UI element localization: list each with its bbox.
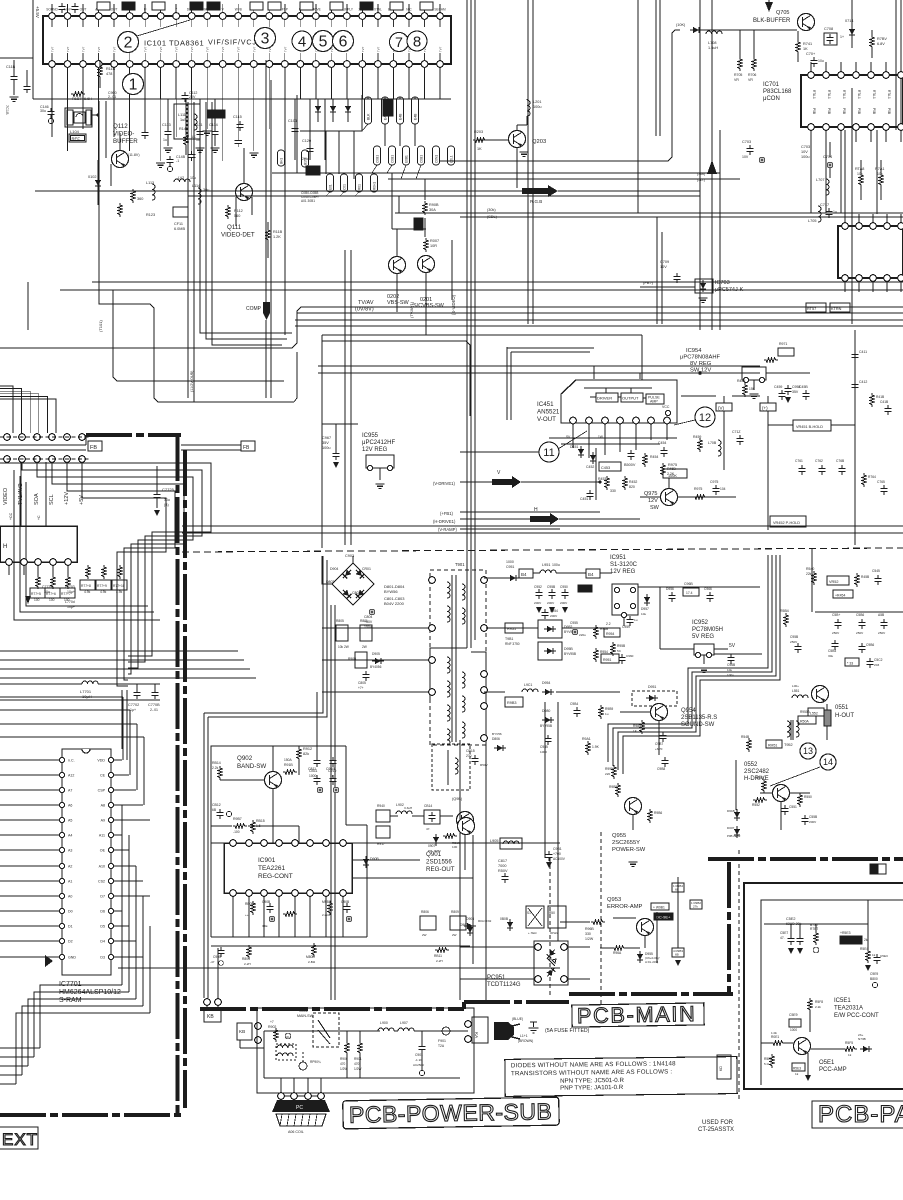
svg-text:100: 100	[452, 845, 457, 849]
svg-text:L902: L902	[396, 803, 404, 807]
svg-text:0B0B: 0B0B	[500, 917, 509, 921]
svg-text:C959: C959	[622, 625, 630, 629]
svg-text:L114: L114	[192, 184, 200, 188]
svg-text:1k: 1k	[795, 1072, 799, 1076]
svg-text:C9B8: C9B8	[657, 767, 665, 771]
svg-text:BYV95B: BYV95B	[540, 724, 552, 728]
svg-text:COMP: COMP	[246, 306, 262, 312]
svg-text:R995: R995	[605, 767, 613, 771]
svg-text:RP90¼: RP90¼	[310, 1060, 321, 1064]
svg-text:470: 470	[340, 1062, 346, 1066]
svg-text:C120: C120	[302, 139, 311, 143]
svg-text:100u: 100u	[552, 563, 560, 567]
svg-text:+R454: +R454	[835, 594, 845, 598]
svg-text:POWER-SW: POWER-SW	[612, 847, 646, 853]
svg-text:R954: R954	[606, 632, 614, 636]
svg-text:12V REG: 12V REG	[362, 447, 388, 453]
svg-text:P0B: P0B	[857, 108, 861, 114]
svg-text:TVT: TVT	[82, 46, 86, 52]
svg-text:(5D.): (5D.)	[697, 178, 705, 182]
svg-text:R902: R902	[268, 1025, 276, 1029]
svg-text:4.9k: 4.9k	[100, 590, 107, 594]
svg-text:++: ++	[245, 913, 249, 917]
svg-text:+12V: +12V	[64, 492, 70, 505]
svg-text:0102: 0102	[88, 175, 96, 179]
svg-text:2-2H: 2-2H	[244, 962, 251, 966]
svg-text:CT-25ASSTX: CT-25ASSTX	[698, 1127, 734, 1133]
svg-text:R454: R454	[650, 455, 658, 459]
svg-text:220: 220	[605, 772, 610, 776]
svg-text:1/2W: 1/2W	[585, 937, 594, 941]
svg-text:C9B4: C9B4	[570, 702, 578, 706]
svg-text:CSP: CSP	[98, 789, 106, 793]
svg-text:A7: A7	[68, 789, 72, 793]
svg-text:P83CL168: P83CL168	[763, 89, 792, 95]
svg-text:C01: C01	[343, 184, 347, 190]
svg-text:E4B: E4B	[384, 113, 388, 120]
svg-text:IC701: IC701	[763, 82, 780, 88]
svg-text:CR01: CR01	[362, 567, 371, 571]
svg-text:R764: R764	[868, 475, 876, 479]
svg-text:1K: 1K	[477, 147, 482, 151]
svg-text:C551: C551	[789, 805, 797, 809]
svg-text:IC901: IC901	[258, 857, 276, 864]
svg-text:+7+: +7+	[358, 686, 364, 690]
svg-text:VDD: VDD	[97, 759, 105, 763]
svg-text:B4: B4	[521, 572, 527, 577]
svg-text:+5.5V: +5.5V	[35, 6, 40, 18]
svg-text:C7729: C7729	[42, 585, 52, 589]
svg-text:5.Ω: 5.Ω	[764, 1062, 770, 1066]
svg-text:TVT: TVT	[159, 46, 163, 52]
svg-text:R9B6: R9B6	[654, 811, 662, 815]
svg-text:Q901: Q901	[426, 851, 442, 858]
svg-text:220u: 220u	[579, 633, 586, 637]
svg-text:TEA2031A: TEA2031A	[834, 1006, 863, 1012]
svg-text:A6: A6	[68, 804, 72, 808]
svg-text:2-BΩ: 2-BΩ	[308, 960, 316, 964]
svg-text:1u5: 1u5	[180, 118, 186, 122]
svg-text:RB11: RB11	[434, 954, 442, 958]
svg-text:R7BV: R7BV	[877, 37, 887, 41]
svg-text:F901: F901	[438, 1039, 446, 1043]
svg-text:VIF/SIF/VCJ: VIF/SIF/VCJ	[208, 38, 257, 47]
svg-text:B4: B4	[588, 572, 594, 577]
svg-text:KA: KA	[474, 1032, 479, 1039]
svg-text:A DL 203): A DL 203)	[645, 960, 658, 964]
svg-text:10u: 10u	[190, 176, 196, 180]
svg-text:E4B: E4B	[414, 113, 418, 120]
svg-text:IC951: IC951	[610, 555, 627, 561]
svg-text:Q705: Q705	[776, 10, 789, 16]
svg-text:C451: C451	[580, 497, 588, 501]
svg-text:C762: C762	[815, 459, 823, 463]
svg-text:C954: C954	[550, 609, 558, 613]
svg-text:2.2k: 2.2k	[815, 1005, 821, 1009]
svg-text:1.9K: 1.9K	[592, 745, 600, 749]
svg-text:1: 1	[129, 77, 138, 94]
svg-text:-1: -1	[176, 159, 179, 163]
svg-text:14: 14	[823, 757, 833, 767]
svg-text:RM51: RM51	[768, 744, 777, 748]
svg-text:1.5uH: 1.5uH	[708, 46, 718, 50]
svg-text:Q975: Q975	[644, 491, 657, 497]
svg-text:DRIVER: DRIVER	[597, 396, 612, 401]
svg-text:(SDL): (SDL)	[487, 215, 498, 219]
svg-text:C41B: C41B	[880, 400, 889, 404]
svg-text:CD: CD	[285, 1035, 289, 1039]
svg-text:R428: R428	[737, 379, 745, 383]
svg-text:CF11: CF11	[174, 222, 183, 226]
svg-text:IC703: IC703	[715, 280, 730, 286]
svg-text:R0H1: R0H1	[373, 182, 377, 190]
svg-text:VIDEO: VIDEO	[3, 487, 9, 505]
svg-text:BYV95B: BYV95B	[564, 652, 576, 656]
svg-text:IC955: IC955	[362, 433, 379, 439]
svg-text:D954: D954	[542, 681, 550, 685]
svg-text:(10K): (10K)	[676, 23, 686, 27]
svg-text:C95B: C95B	[547, 585, 556, 589]
svg-text:H: H	[3, 544, 7, 550]
svg-text:D451: D451	[570, 445, 578, 449]
svg-text:C96B: C96B	[684, 582, 693, 586]
svg-text:250V: 250V	[832, 631, 840, 635]
svg-text:200V: 200V	[560, 601, 568, 605]
svg-text:TEA2261: TEA2261	[258, 865, 285, 872]
svg-text:M9B7: M9B7	[322, 900, 331, 904]
svg-text:2-2H: 2-2H	[436, 959, 443, 963]
svg-text:L708: L708	[708, 41, 716, 45]
svg-text:IC7701: IC7701	[59, 981, 82, 988]
svg-text:P0B 2EB2: P0B 2EB2	[727, 834, 741, 838]
svg-text:R01: R01	[358, 184, 362, 190]
svg-text:VBS-SW: VBS-SW	[387, 300, 410, 306]
svg-text:R9B9: R9B9	[605, 707, 613, 711]
svg-text:VR: VR	[748, 78, 753, 82]
svg-text:(30k): (30k)	[487, 208, 496, 212]
svg-text:1μ+: 1μ+	[130, 708, 136, 712]
svg-text:1k: 1k	[848, 1053, 852, 1057]
svg-text:D007: D007	[727, 826, 735, 830]
svg-text:R806: R806	[421, 910, 429, 914]
svg-text:4.9k: 4.9k	[84, 590, 91, 594]
svg-text:C9E9: C9E9	[870, 972, 878, 976]
svg-text:2: 2	[124, 35, 133, 52]
svg-text:10u: 10u	[641, 612, 646, 616]
svg-text:P0B: P0B	[812, 108, 816, 114]
svg-text:L00+: L00+	[792, 684, 799, 688]
svg-text:T2A: T2A	[438, 1044, 445, 1048]
svg-text:(+FB1): (+FB1)	[440, 511, 454, 516]
svg-text:OE: OE	[100, 849, 106, 853]
svg-text:1u: 1u	[605, 712, 609, 716]
svg-text:RTA.1: RTA.1	[872, 90, 876, 99]
svg-text:B730: B730	[810, 923, 818, 927]
svg-text:C975: C975	[710, 480, 718, 484]
svg-text:100u: 100u	[322, 446, 330, 450]
svg-text:C0B1: C0B1	[391, 155, 395, 163]
svg-text:FB: FB	[90, 445, 97, 451]
svg-text:(11/2V OUB): (11/2V OUB)	[190, 370, 194, 392]
svg-text:TVT: TVT	[361, 46, 365, 52]
svg-text:L113: L113	[146, 181, 154, 185]
svg-text:+700: +700	[553, 852, 561, 856]
svg-text:T901: T901	[455, 562, 465, 567]
svg-text:L70B: L70B	[708, 441, 717, 445]
svg-text:478: 478	[106, 72, 112, 76]
svg-text:7: 7	[395, 35, 403, 51]
svg-text:C7725: C7725	[162, 487, 175, 492]
svg-text:100u: 100u	[533, 105, 541, 109]
svg-text:A9: A9	[101, 819, 105, 823]
svg-text:R41B: R41B	[876, 395, 885, 399]
svg-text:C770B: C770B	[148, 703, 160, 707]
svg-text:IC5E1: IC5E1	[834, 998, 851, 1004]
svg-text:RTA.1: RTA.1	[827, 90, 831, 99]
svg-text:C459: C459	[774, 385, 782, 389]
svg-text:1/2W: 1/2W	[354, 1067, 361, 1071]
svg-text:30A: 30A	[429, 208, 436, 212]
svg-text:470: 470	[354, 1062, 360, 1066]
svg-text:R452: R452	[629, 480, 637, 484]
svg-text:Q203: Q203	[532, 139, 546, 145]
svg-text:μPC2412HF: μPC2412HF	[362, 440, 395, 446]
svg-text:R551: R551	[756, 776, 764, 780]
svg-text:2SC2655Y: 2SC2655Y	[612, 840, 640, 846]
svg-text:(V-DRIVE1): (V-DRIVE1)	[433, 481, 455, 486]
svg-text:BYW56: BYW56	[384, 589, 398, 594]
svg-text:PCC-AMP: PCC-AMP	[819, 1067, 847, 1073]
svg-text:R741: R741	[803, 42, 812, 46]
svg-text:D4: D4	[100, 940, 105, 944]
svg-text:REG-OUT: REG-OUT	[426, 866, 455, 873]
svg-text:O5E1: O5E1	[819, 1060, 835, 1066]
svg-text:R917: R917	[377, 842, 385, 846]
svg-text:1000: 1000	[506, 560, 514, 564]
svg-text:R540: R540	[806, 567, 814, 571]
svg-text:(T101): (T101)	[98, 320, 103, 332]
svg-text:L905: L905	[490, 839, 498, 843]
svg-text:C101: C101	[288, 119, 297, 123]
svg-text:OUTPUT: OUTPUT	[622, 396, 639, 401]
svg-text:S/CVBS-SW: S/CVBS-SW	[413, 303, 445, 309]
svg-text:0907: 0907	[428, 844, 436, 848]
svg-text:P0B: P0B	[842, 108, 846, 114]
svg-text:104: 104	[720, 487, 726, 491]
svg-text:R804: R804	[242, 957, 250, 961]
svg-text:R77+10: R77+10	[113, 584, 125, 588]
svg-text:23+: 23+	[858, 1033, 863, 1037]
svg-text:VCC: VCC	[662, 405, 670, 409]
svg-text:C70+: C70+	[806, 52, 816, 56]
svg-text:AC250V: AC250V	[413, 1063, 424, 1067]
svg-text:C714: C714	[823, 155, 832, 159]
svg-text:R95B: R95B	[617, 644, 626, 648]
svg-text:RTA.1: RTA.1	[842, 90, 846, 99]
svg-text:N.C: N.C	[406, 8, 412, 12]
svg-text:(B): (B)	[164, 503, 169, 507]
svg-text:C951: C951	[506, 565, 514, 569]
svg-text:C0B1: C0B1	[420, 155, 424, 163]
svg-text:μCON: μCON	[763, 96, 780, 102]
svg-text:TCDT1124G: TCDT1124G	[487, 982, 521, 988]
svg-text:C11B: C11B	[6, 65, 16, 69]
svg-text:4: 4	[298, 33, 306, 50]
svg-text:KB: KB	[207, 1014, 214, 1020]
svg-text:+7: +7	[270, 1020, 274, 1024]
svg-text:TVT: TVT	[376, 46, 380, 52]
svg-text:10V: 10V	[660, 265, 667, 269]
svg-text:R805: R805	[336, 619, 344, 623]
svg-text:TVT: TVT	[237, 46, 241, 52]
svg-text:L705: L705	[808, 219, 816, 223]
svg-text:RTA.1: RTA.1	[812, 90, 816, 99]
svg-text:VR: VR	[734, 78, 739, 82]
svg-text:E0B1: E0B1	[405, 155, 409, 163]
svg-text:5V: 5V	[729, 643, 736, 649]
svg-text:C5E2: C5E2	[786, 917, 796, 921]
svg-text:C5B6: C5B6	[856, 613, 864, 617]
svg-text:R9B3: R9B3	[507, 701, 517, 705]
svg-text:R951: R951	[603, 658, 611, 662]
svg-text:1/2W: 1/2W	[340, 1067, 347, 1071]
svg-text:C952: C952	[534, 585, 542, 589]
svg-text:CS2: CS2	[98, 880, 105, 884]
svg-text:L552: L552	[810, 712, 818, 716]
svg-text:AMP: AMP	[650, 400, 658, 404]
svg-text:47.: 47.	[780, 936, 785, 940]
svg-text:R0E1: R0E1	[771, 1035, 779, 1039]
svg-text:330: 330	[585, 932, 591, 936]
svg-text:0FW2: 0FW2	[550, 931, 558, 935]
svg-text:100: 100	[34, 598, 40, 602]
svg-text:1u: 1u	[196, 138, 200, 142]
svg-text:(11.8V): (11.8V)	[128, 153, 140, 157]
svg-text:D3: D3	[100, 956, 105, 960]
svg-text:L900: L900	[380, 1021, 388, 1025]
svg-text:C955: C955	[570, 621, 578, 625]
svg-text:RB14: RB14	[212, 761, 221, 765]
svg-text:FB: FB	[243, 445, 250, 451]
svg-text:TVT: TVT	[221, 46, 225, 52]
svg-text:A11: A11	[99, 834, 105, 838]
svg-text:REF: REF	[72, 137, 81, 142]
svg-text:PC951: PC951	[487, 975, 506, 981]
svg-text:RNF 3750: RNF 3750	[505, 642, 520, 646]
svg-text:(V-RAMP): (V-RAMP)	[438, 527, 457, 532]
svg-text:WFB: WFB	[235, 8, 242, 12]
svg-text:8V REG: 8V REG	[690, 361, 712, 367]
svg-text:3.3uH: 3.3uH	[404, 806, 412, 810]
svg-text:47.: 47.	[426, 827, 430, 831]
svg-text:L1+1: L1+1	[520, 1034, 528, 1038]
svg-text:C9B1: C9B1	[553, 847, 562, 851]
svg-text:2.2: 2.2	[606, 622, 611, 626]
svg-text:FSP: FSP	[282, 8, 288, 12]
svg-text:C113: C113	[162, 123, 171, 127]
svg-text:17.4: 17.4	[686, 591, 693, 595]
svg-text:203: 203	[874, 663, 879, 667]
svg-text:SW: SW	[650, 505, 660, 511]
svg-text:C111: C111	[194, 123, 203, 127]
svg-text:CE: CE	[100, 774, 106, 778]
svg-text:A01 30B1: A01 30B1	[301, 199, 315, 203]
svg-text:TVT: TVT	[175, 46, 179, 52]
svg-text:C545: C545	[872, 569, 880, 573]
svg-text:SOUND-SW: SOUND-SW	[681, 722, 715, 728]
svg-text:C5B+: C5B+	[832, 613, 840, 617]
svg-text:5V REG: 5V REG	[692, 634, 714, 640]
svg-text:L201: L201	[533, 100, 541, 104]
svg-text:R96A: R96A	[613, 951, 622, 955]
svg-text:N73B: N73B	[858, 1037, 866, 1041]
svg-text:C761: C761	[795, 459, 803, 463]
svg-text:OUT: OUT	[111, 8, 118, 12]
svg-text:CB11: CB11	[309, 769, 318, 773]
svg-text:R971: R971	[779, 342, 787, 346]
svg-text:BUFFER: BUFFER	[113, 138, 138, 145]
svg-text:200V: 200V	[809, 820, 817, 824]
svg-text:R0A 0F92: R0A 0F92	[478, 919, 492, 923]
svg-text:VR451 B-HOLD: VR451 B-HOLD	[796, 425, 823, 429]
svg-text:D95B: D95B	[564, 647, 573, 651]
svg-text:SOA: SOA	[34, 493, 40, 505]
svg-text:IC101 TDA8361: IC101 TDA8361	[144, 39, 204, 48]
svg-text:2SC2482: 2SC2482	[744, 769, 770, 775]
svg-text:10V: 10V	[801, 150, 808, 154]
svg-text:B500V: B500V	[624, 463, 636, 467]
svg-text:E4B: E4B	[399, 113, 403, 120]
svg-text:A5: A5	[68, 819, 72, 823]
svg-text:A3: A3	[68, 849, 72, 853]
svg-text:D806: D806	[492, 737, 500, 741]
svg-text:BLK-BUFFER: BLK-BUFFER	[753, 18, 791, 24]
svg-text:R50: R50	[549, 911, 555, 915]
svg-text:R5B4: R5B4	[780, 609, 789, 613]
svg-text:M80B: M80B	[306, 955, 315, 959]
svg-text:D5: D5	[100, 925, 105, 929]
svg-text:D61B: D61B	[727, 809, 735, 813]
svg-text:(Q9B): (Q9B)	[452, 797, 463, 801]
svg-text:IC954: IC954	[686, 348, 702, 354]
svg-text:ERROR-AMP: ERROR-AMP	[607, 904, 643, 910]
svg-text:D6: D6	[100, 910, 105, 914]
svg-text:HM6264ALSP10/12: HM6264ALSP10/12	[59, 989, 121, 996]
svg-text:XTAL: XTAL	[374, 8, 382, 12]
svg-text:A8: A8	[101, 804, 105, 808]
svg-text:3: 3	[261, 31, 270, 48]
svg-text:C45B: C45B	[799, 385, 808, 389]
svg-text:A12: A12	[68, 774, 74, 778]
svg-text:RTA8: RTA8	[855, 167, 864, 171]
svg-text:R801: R801	[360, 619, 368, 623]
svg-text:A06 COIL: A06 COIL	[288, 1130, 304, 1134]
svg-text:GND: GND	[68, 956, 76, 960]
svg-text:+C: +C	[37, 515, 41, 520]
svg-text:(BLUE): (BLUE)	[512, 1017, 523, 1021]
svg-text:+CC: +CC	[9, 512, 13, 520]
svg-text:Q111: Q111	[227, 224, 242, 231]
svg-text:TVT: TVT	[144, 46, 148, 52]
svg-text:KB: KB	[239, 1029, 245, 1034]
svg-text:D951: D951	[648, 685, 656, 689]
svg-text:100u: 100u	[801, 155, 809, 159]
svg-text:35V: 35V	[322, 441, 329, 445]
svg-text:C5E9: C5E9	[789, 1013, 798, 1017]
svg-text:10k: 10k	[857, 172, 863, 176]
svg-text:360: 360	[137, 197, 143, 201]
svg-text:250V: 250V	[856, 631, 864, 635]
